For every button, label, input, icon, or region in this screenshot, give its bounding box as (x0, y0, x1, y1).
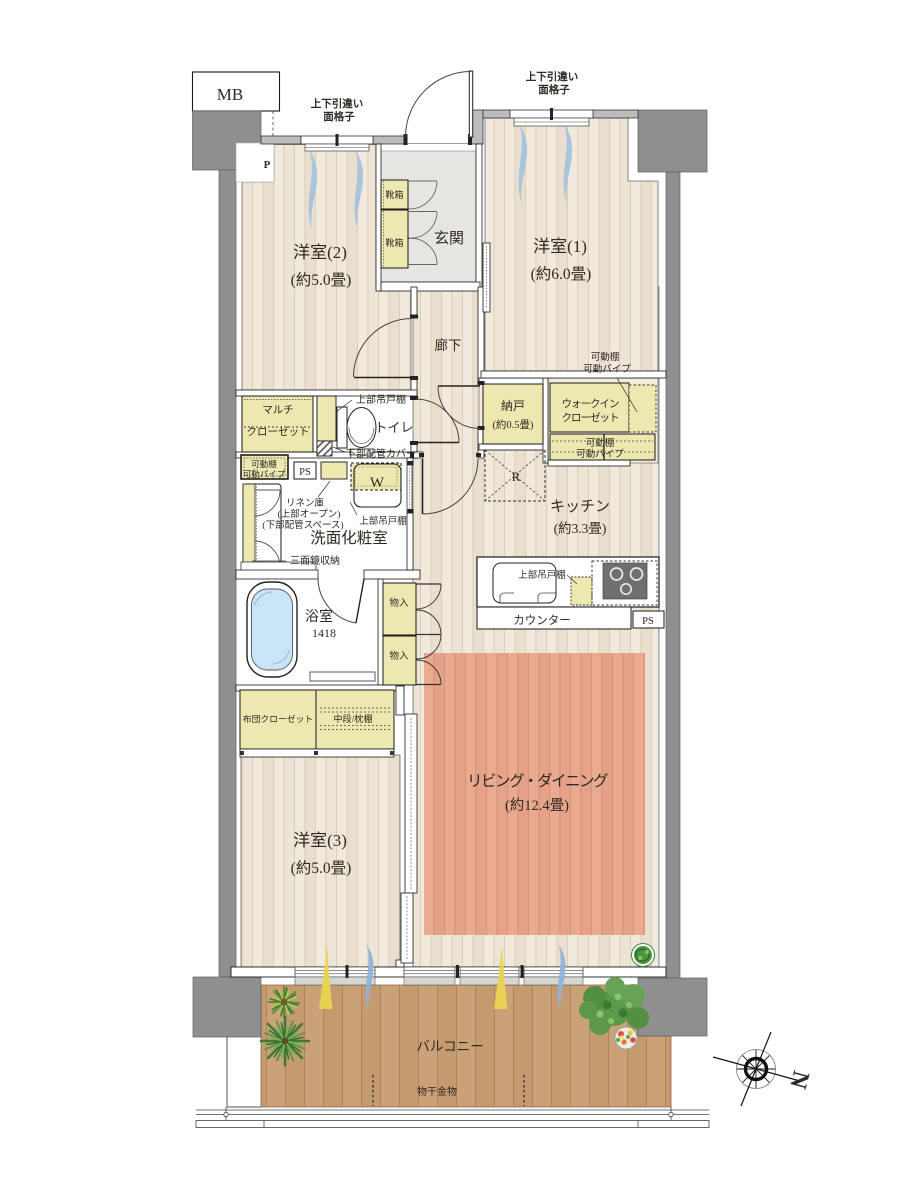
svg-text:キッチン: キッチン (550, 499, 610, 515)
svg-text:(約5.0畳): (約5.0畳) (291, 859, 352, 877)
svg-text:洋室(2): 洋室(2) (293, 243, 347, 262)
svg-text:物入: 物入 (389, 597, 409, 609)
svg-text:浴室: 浴室 (305, 608, 333, 625)
svg-text:面格子: 面格子 (323, 110, 355, 123)
svg-text:(約5.0畳): (約5.0畳) (291, 271, 352, 289)
svg-text:PS: PS (299, 467, 311, 478)
svg-text:(約6.0畳): (約6.0畳) (531, 265, 592, 283)
svg-text:(約0.5畳): (約0.5畳) (492, 418, 534, 431)
svg-text:R: R (512, 469, 521, 484)
svg-text:(下部配管スペース): (下部配管スペース) (262, 519, 343, 531)
svg-text:(約12.4畳): (約12.4畳) (505, 797, 569, 814)
svg-text:三面鏡収納: 三面鏡収納 (290, 554, 340, 567)
svg-text:P: P (264, 159, 271, 171)
svg-text:靴箱: 靴箱 (385, 189, 403, 200)
svg-text:クローゼット: クローゼット (247, 426, 310, 438)
svg-text:靴箱: 靴箱 (385, 237, 403, 248)
svg-text:洗面化粧室: 洗面化粧室 (310, 529, 388, 547)
svg-text:可動棚: 可動棚 (591, 351, 620, 363)
svg-text:洋室(1): 洋室(1) (533, 237, 587, 256)
svg-text:(上部オープン): (上部オープン) (278, 508, 341, 520)
svg-text:中段/枕棚: 中段/枕棚 (333, 713, 372, 724)
svg-text:可動パイプ: 可動パイプ (576, 449, 624, 460)
svg-text:納戸: 納戸 (501, 399, 525, 413)
svg-text:下部配管カバー: 下部配管カバー (346, 447, 416, 460)
svg-text:玄関: 玄関 (434, 230, 464, 247)
svg-text:上部吊戸棚: 上部吊戸棚 (518, 569, 566, 581)
svg-text:トイレ: トイレ (374, 420, 413, 435)
svg-text:面格子: 面格子 (538, 83, 570, 96)
svg-text:リビング・ダイニング: リビング・ダイニング (467, 772, 608, 790)
svg-text:バルコニー: バルコニー (416, 1039, 483, 1054)
svg-text:布団クローゼット: 布団クローゼット (243, 713, 313, 724)
svg-text:上下引違い: 上下引違い (311, 97, 364, 110)
svg-text:上部吊戸棚: 上部吊戸棚 (359, 515, 407, 527)
svg-text:物干金物: 物干金物 (417, 1085, 457, 1098)
svg-text:可動棚: 可動棚 (251, 459, 277, 469)
svg-text:可動パイプ: 可動パイプ (243, 469, 286, 479)
svg-text:W: W (370, 475, 385, 491)
svg-text:廊下: 廊下 (435, 337, 462, 353)
svg-text:ウォークイン: ウォークイン (562, 398, 619, 410)
svg-text:カウンター: カウンター (513, 614, 571, 627)
svg-text:物入: 物入 (389, 650, 409, 662)
svg-text:PS: PS (642, 616, 654, 627)
svg-text:MB: MB (217, 85, 243, 104)
svg-text:上下引違い: 上下引違い (526, 70, 579, 83)
svg-text:(約3.3畳): (約3.3畳) (554, 521, 607, 536)
svg-text:1418: 1418 (312, 626, 336, 640)
svg-text:リネン庫: リネン庫 (286, 497, 325, 509)
svg-text:マルチ: マルチ (262, 404, 294, 416)
svg-text:可動棚: 可動棚 (586, 437, 615, 449)
svg-text:可動パイプ: 可動パイプ (583, 364, 631, 375)
svg-text:クローゼット: クローゼット (562, 412, 619, 424)
svg-text:洋室(3): 洋室(3) (293, 831, 347, 850)
svg-text:上部吊戸棚: 上部吊戸棚 (356, 393, 406, 406)
